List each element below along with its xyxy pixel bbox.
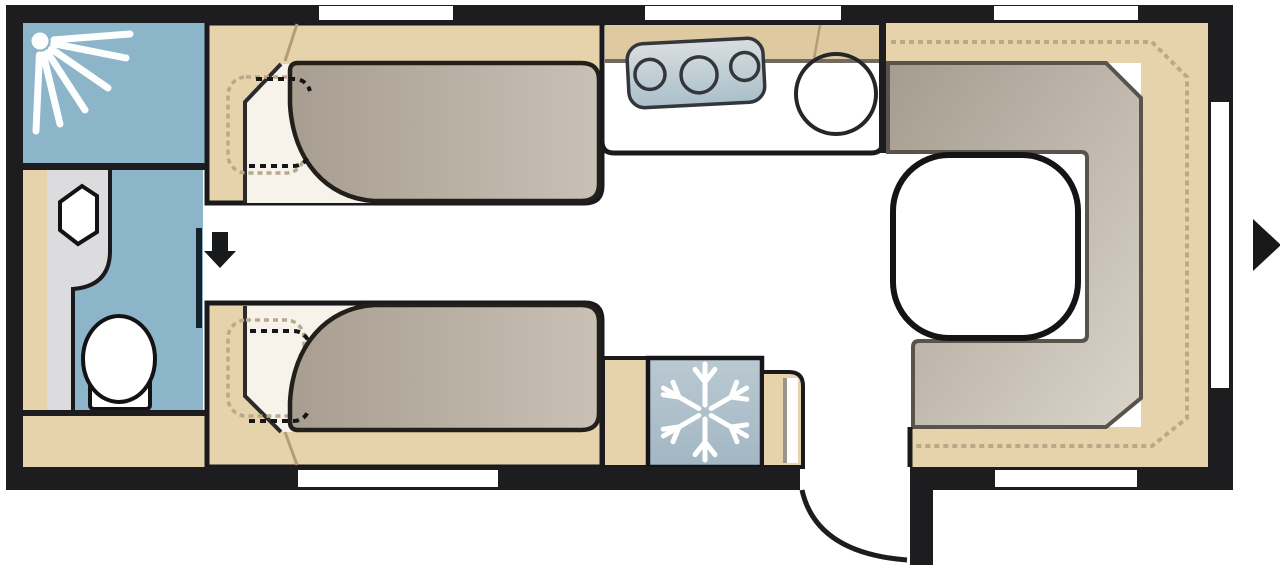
washroom <box>23 23 207 467</box>
bed-top-mattress <box>290 63 599 201</box>
wall-door-stub <box>910 467 933 565</box>
wardrobe <box>23 416 205 467</box>
window-right <box>1211 102 1229 388</box>
dinette <box>879 23 1208 467</box>
wardrobe-partition <box>23 410 207 416</box>
bed-bottom-mattress <box>290 305 599 430</box>
hob-icon <box>626 37 765 108</box>
dinette-table <box>893 155 1078 338</box>
bed-bottom <box>207 303 602 467</box>
window-bottom-bed <box>298 470 498 487</box>
cabinet-door-strip <box>787 378 798 463</box>
window-top-left <box>319 6 453 20</box>
washroom-side-cabinet <box>23 170 47 410</box>
caravan-floor-plan <box>0 0 1280 568</box>
shower-partition-wall <box>23 163 207 170</box>
window-bottom-dinette <box>995 470 1137 487</box>
bed-top <box>207 23 602 203</box>
wall-left <box>6 5 23 490</box>
cabinet-edge-line <box>783 378 787 463</box>
fridge-block <box>603 358 803 467</box>
kitchen <box>602 23 883 153</box>
cabinet-left-of-fridge <box>603 358 648 467</box>
entry-door-swing-arc <box>802 490 907 560</box>
washroom-door <box>196 228 202 328</box>
kitchen-dinette-divider <box>879 23 886 153</box>
toilet-bowl-icon <box>83 316 155 402</box>
floor-plan-stage: Caravan floor plan (top view) <box>0 0 1280 568</box>
direction-arrow-right-icon <box>1253 219 1280 271</box>
window-top-kitchen <box>645 6 841 20</box>
window-top-dinette <box>994 6 1138 20</box>
